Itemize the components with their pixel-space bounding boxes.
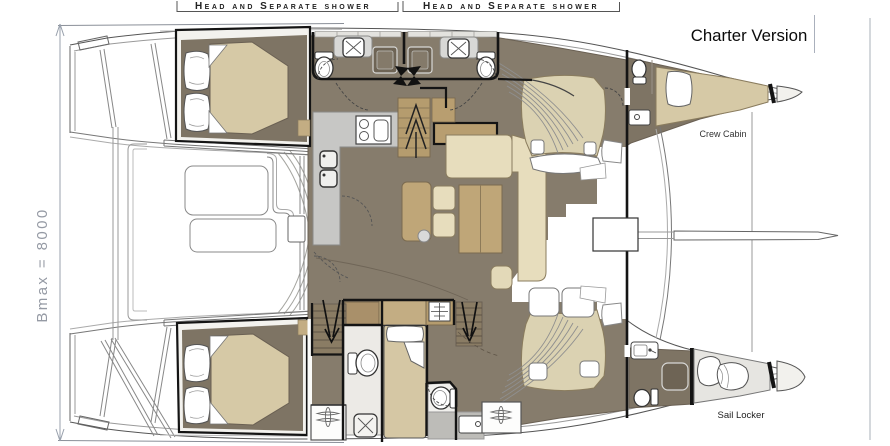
svg-text:Head and Separate shower: Head and Separate shower	[195, 1, 371, 12]
svg-text:Sail Locker: Sail Locker	[718, 410, 765, 421]
svg-text:Head and Separate shower: Head and Separate shower	[423, 1, 599, 12]
svg-text:Charter Version: Charter Version	[691, 26, 808, 45]
svg-text:Bmax = 8000: Bmax = 8000	[34, 207, 51, 322]
svg-text:Crew Cabin: Crew Cabin	[699, 129, 746, 139]
